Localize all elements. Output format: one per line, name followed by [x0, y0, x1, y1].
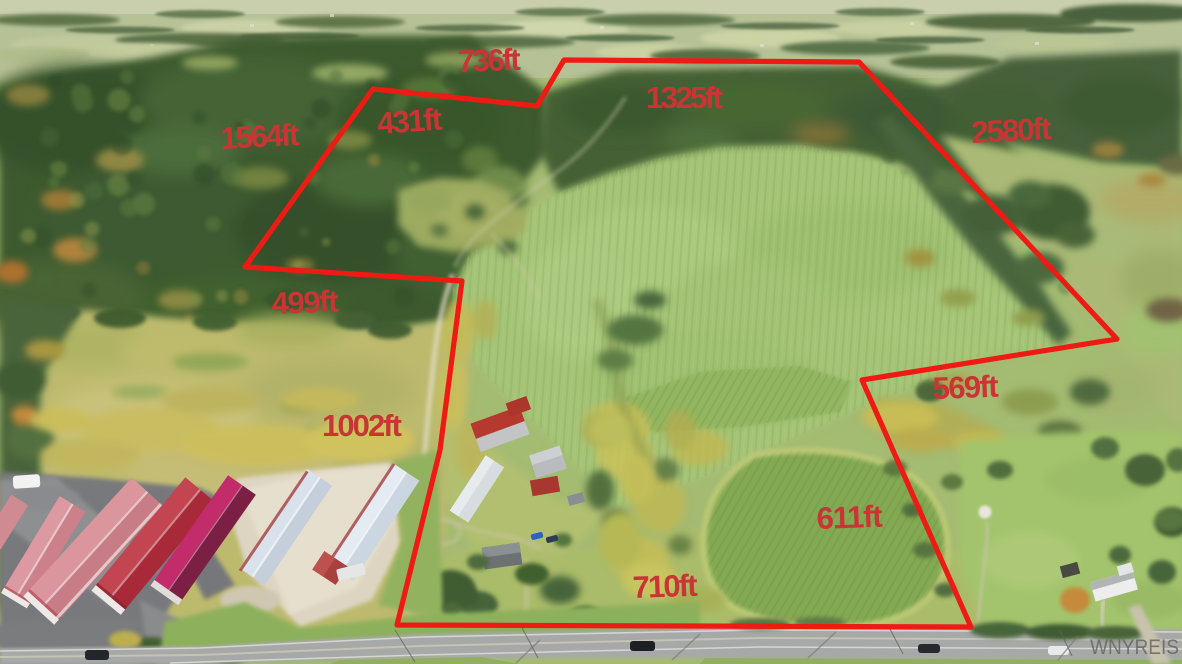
- svg-text:1002ft: 1002ft: [322, 408, 402, 443]
- svg-text:WNYREIS: WNYREIS: [1090, 635, 1179, 659]
- svg-text:569ft: 569ft: [932, 369, 999, 406]
- svg-text:431ft: 431ft: [376, 102, 443, 141]
- svg-text:710ft: 710ft: [632, 568, 698, 605]
- svg-text:2580ft: 2580ft: [971, 111, 1053, 150]
- svg-text:499ft: 499ft: [271, 284, 339, 321]
- svg-text:1564ft: 1564ft: [220, 117, 301, 156]
- svg-text:1325ft: 1325ft: [646, 80, 723, 115]
- svg-text:736ft: 736ft: [457, 42, 521, 79]
- svg-text:611ft: 611ft: [816, 499, 883, 536]
